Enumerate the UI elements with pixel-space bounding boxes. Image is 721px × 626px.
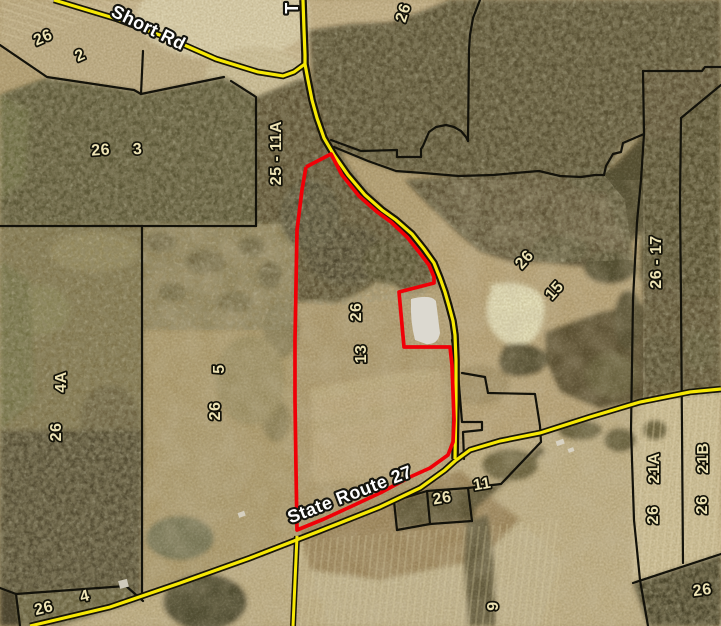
svg-text:26: 26: [91, 141, 111, 159]
svg-text:26: 26: [48, 423, 65, 442]
svg-text:11: 11: [472, 475, 493, 495]
svg-text:21B: 21B: [695, 443, 712, 474]
svg-text:26: 26: [692, 581, 713, 600]
svg-text:13: 13: [353, 345, 370, 364]
svg-text:26: 26: [431, 489, 452, 509]
svg-text:5: 5: [211, 364, 228, 373]
svg-text:25 - 11A: 25 - 11A: [268, 121, 285, 185]
svg-text:26: 26: [207, 402, 224, 421]
svg-text:9: 9: [485, 601, 502, 610]
svg-text:26 - 17: 26 - 17: [648, 235, 665, 288]
svg-text:4A: 4A: [53, 371, 70, 392]
svg-text:21A: 21A: [646, 453, 663, 484]
svg-text:26: 26: [645, 506, 662, 525]
svg-text:3: 3: [132, 141, 143, 159]
svg-text:26: 26: [694, 496, 711, 515]
svg-text:T: T: [282, 2, 302, 14]
svg-text:26: 26: [348, 303, 365, 322]
